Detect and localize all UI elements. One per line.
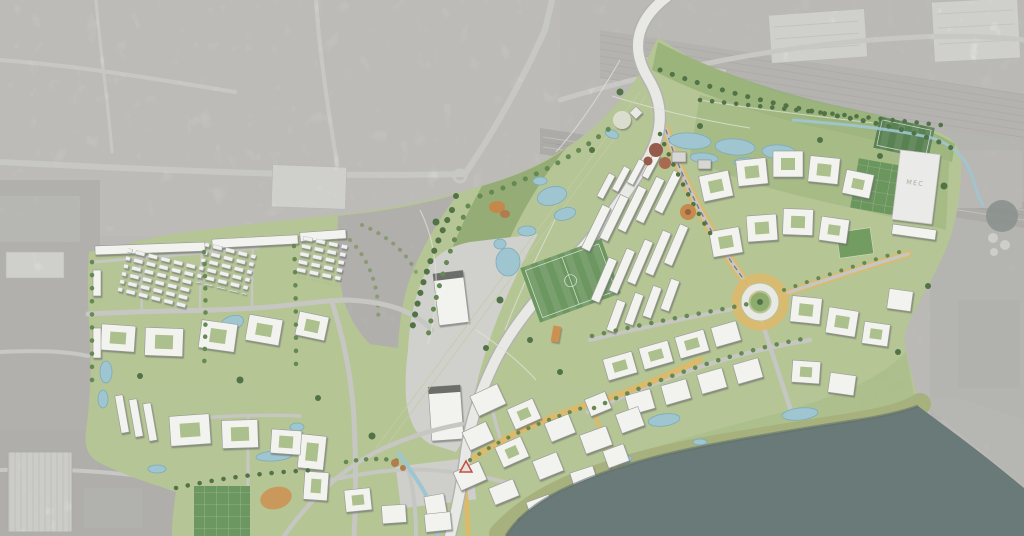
photo-grain-overlay — [0, 0, 1024, 536]
masterplan-aerial-map: MEC — [0, 0, 1024, 536]
